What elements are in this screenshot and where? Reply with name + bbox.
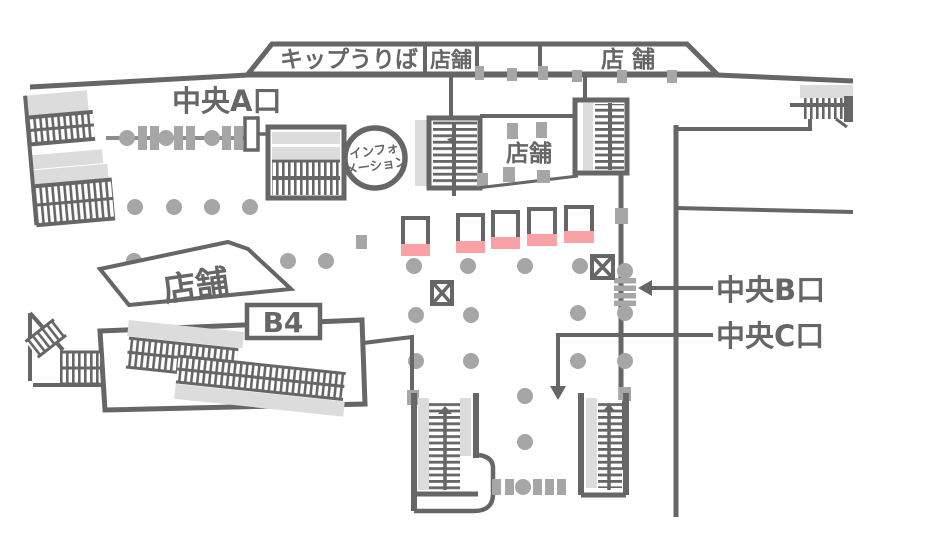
exit-a-label: 中央A口	[172, 84, 281, 118]
ticket-gates-bottom	[492, 479, 566, 495]
kiosk	[527, 209, 557, 246]
shop-label-banner: 店舗	[430, 48, 472, 72]
exit-b-callout: 中央B口	[638, 273, 825, 307]
exit-c-callout: 中央C口	[550, 319, 824, 400]
exit-c-label: 中央C口	[716, 319, 824, 353]
level-b4-badge: B4	[247, 305, 320, 339]
stairs-top-left-icon	[23, 89, 115, 226]
stairs-bottom-left-icon	[25, 313, 103, 385]
b4-hall: B4	[100, 305, 365, 417]
shop-center-label: 店舗	[506, 141, 552, 167]
ticket-gates-a	[106, 118, 270, 150]
stairs-right-edge-icon	[790, 85, 853, 127]
kiosk	[491, 212, 520, 249]
escalator-a-icon	[268, 127, 344, 198]
exit-c-arrow-icon	[550, 386, 566, 400]
shop-left-label: 店舗	[160, 262, 231, 310]
stairs-bottom-center-right-icon	[581, 393, 626, 495]
kiosk	[401, 218, 430, 256]
top-wall: キップうりば 店舗 店 舗	[30, 44, 853, 87]
information-booth: インフォ メーション	[342, 128, 408, 188]
stairs-center-top-icon	[415, 75, 488, 196]
shop-room-top: 店舗	[477, 75, 585, 188]
level-b4-label: B4	[263, 306, 304, 339]
shop-area-left: 店舗	[100, 242, 291, 309]
kiosk	[564, 207, 594, 243]
elevator-icon	[590, 254, 615, 280]
hall-connector-wall	[363, 337, 412, 393]
stairs-right-top-icon	[575, 100, 627, 173]
shop-label-banner-right: 店 舗	[601, 47, 655, 73]
ticket-office-label: キップうりば	[280, 47, 418, 73]
station-map: キップうりば 店舗 店 舗 中央A口	[0, 0, 938, 547]
kiosk-row	[401, 207, 594, 256]
stairs-bottom-center-left-icon	[407, 390, 493, 511]
exit-b-stairs-icon	[614, 278, 636, 306]
gate-end-box	[245, 118, 258, 150]
exit-b-label: 中央B口	[716, 273, 825, 307]
kiosk	[456, 215, 485, 253]
elevator-icon	[430, 280, 454, 306]
exit-b-arrow-icon	[638, 280, 652, 296]
